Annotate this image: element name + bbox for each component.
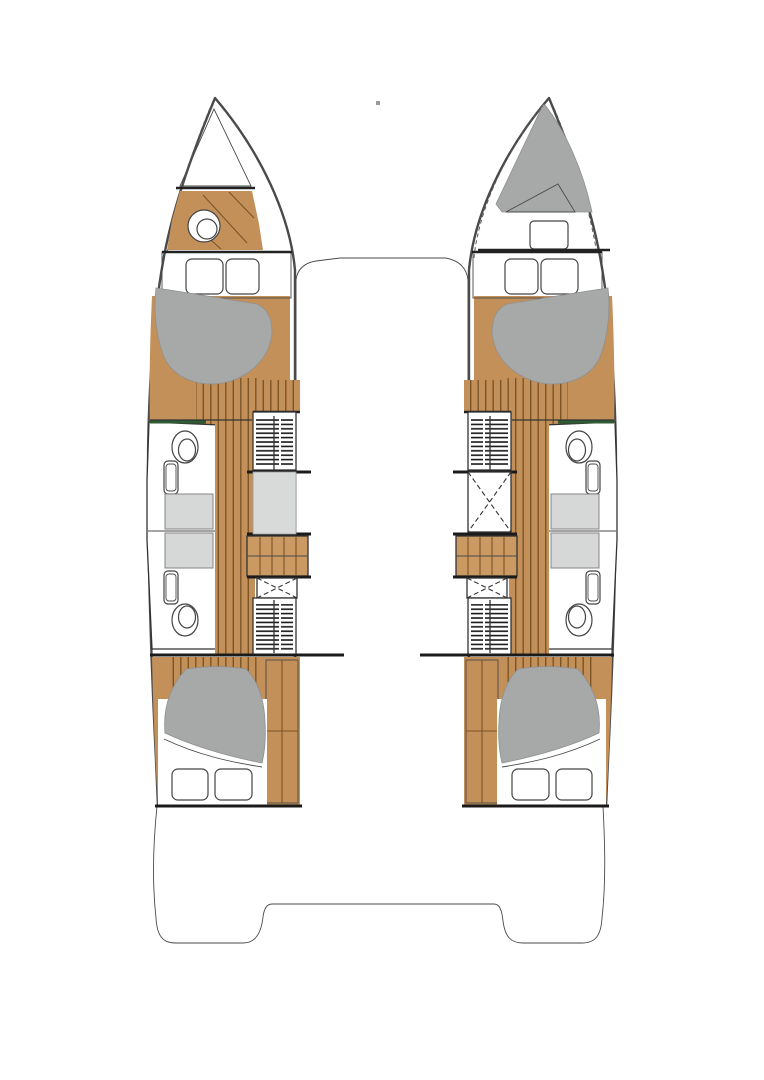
- toilet-bowl-icon: [197, 219, 217, 239]
- deck-hatch: [530, 221, 568, 249]
- right-bathrooms: [538, 422, 617, 649]
- mast-reference-dot: [376, 101, 380, 105]
- right-aft-cabin: [462, 657, 612, 806]
- catamaran-floor-plan-page: [0, 0, 764, 1080]
- left-bathrooms: [147, 422, 226, 649]
- companionway-landing: [253, 472, 296, 534]
- left-aft-cabin: [152, 657, 302, 806]
- page-background: [0, 0, 764, 1080]
- catamaran-floor-plan: [0, 0, 764, 1080]
